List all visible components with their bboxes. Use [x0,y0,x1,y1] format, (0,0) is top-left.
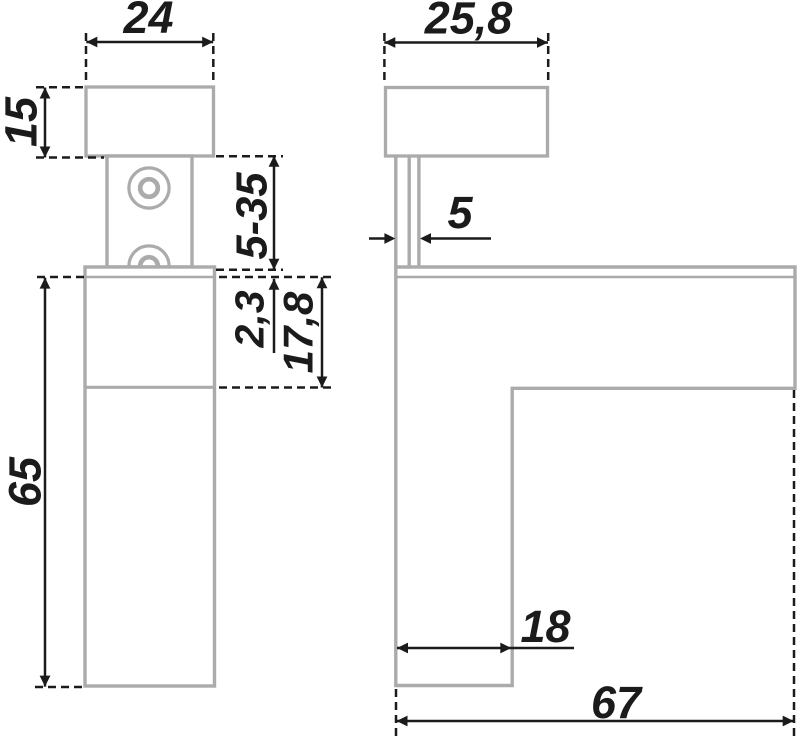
svg-text:17,8: 17,8 [275,291,322,373]
svg-text:5: 5 [447,187,473,238]
svg-text:24: 24 [122,0,173,43]
svg-text:67: 67 [591,677,643,728]
svg-text:18: 18 [520,601,570,652]
svg-text:15: 15 [0,96,47,147]
svg-text:5-35: 5-35 [228,172,276,260]
svg-text:25,8: 25,8 [424,0,513,44]
svg-text:2,3: 2,3 [226,290,272,348]
svg-text:65: 65 [0,456,51,507]
